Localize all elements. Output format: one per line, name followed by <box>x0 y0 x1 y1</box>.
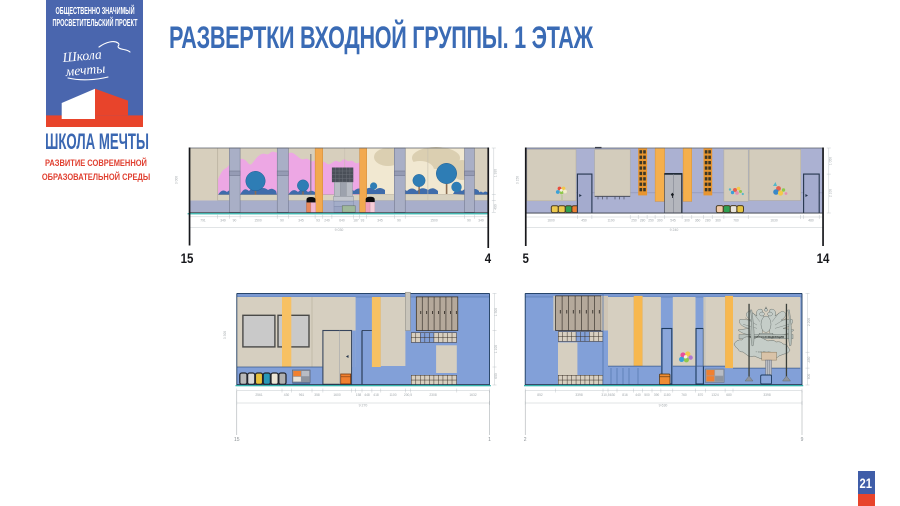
svg-text:3398: 3398 <box>763 393 771 397</box>
svg-text:2: 2 <box>524 437 527 443</box>
svg-text:249: 249 <box>324 219 330 223</box>
svg-text:390: 390 <box>654 393 660 397</box>
svg-text:1600: 1600 <box>547 219 555 223</box>
svg-text:345: 345 <box>298 219 304 223</box>
svg-text:3 150: 3 150 <box>516 176 520 184</box>
svg-text:1324: 1324 <box>711 393 719 397</box>
svg-text:250: 250 <box>631 219 637 223</box>
svg-text:1 500: 1 500 <box>494 308 498 316</box>
svg-text:93: 93 <box>361 219 365 223</box>
svg-text:1: 1 <box>488 437 491 443</box>
svg-text:1 100: 1 100 <box>494 345 498 353</box>
svg-text:640: 640 <box>339 219 345 223</box>
svg-text:852: 852 <box>537 393 543 397</box>
svg-text:9 270: 9 270 <box>359 404 368 408</box>
svg-text:500: 500 <box>644 393 650 397</box>
svg-text:280: 280 <box>705 219 711 223</box>
svg-text:90: 90 <box>467 219 471 223</box>
svg-text:358: 358 <box>314 393 320 397</box>
svg-text:430: 430 <box>284 393 290 397</box>
svg-text:1100: 1100 <box>389 393 396 397</box>
svg-text:200,5: 200,5 <box>404 393 412 397</box>
svg-text:90: 90 <box>233 219 237 223</box>
svg-text:90: 90 <box>397 219 401 223</box>
svg-text:349: 349 <box>478 219 484 223</box>
svg-text:480: 480 <box>808 219 814 223</box>
svg-text:545: 545 <box>670 219 676 223</box>
svg-text:450: 450 <box>581 219 587 223</box>
svg-text:300: 300 <box>684 219 690 223</box>
svg-text:90: 90 <box>280 219 284 223</box>
svg-text:440: 440 <box>635 393 641 397</box>
svg-text:158: 158 <box>356 393 362 397</box>
svg-text:250: 250 <box>648 219 654 223</box>
svg-text:15: 15 <box>234 437 240 443</box>
svg-text:9 240: 9 240 <box>670 228 679 232</box>
svg-text:1 050: 1 050 <box>829 157 833 165</box>
svg-text:760: 760 <box>681 393 687 397</box>
svg-text:1500: 1500 <box>254 219 262 223</box>
svg-text:14: 14 <box>817 250 831 266</box>
svg-text:5: 5 <box>523 250 529 266</box>
svg-text:мечты: мечты <box>64 61 106 79</box>
svg-text:1600: 1600 <box>333 393 341 397</box>
svg-text:791: 791 <box>200 219 206 223</box>
svg-text:2308: 2308 <box>429 393 437 397</box>
svg-text:3398: 3398 <box>575 393 583 397</box>
svg-text:-450: -450 <box>807 357 811 364</box>
svg-text:4: 4 <box>485 250 492 266</box>
svg-text:1632: 1632 <box>469 393 477 397</box>
svg-text:15: 15 <box>181 250 194 266</box>
svg-text:1500: 1500 <box>430 219 438 223</box>
svg-text:1630: 1630 <box>770 219 778 223</box>
svg-text:2561: 2561 <box>255 393 263 397</box>
svg-text:9: 9 <box>801 437 804 443</box>
svg-text:961: 961 <box>299 393 305 397</box>
svg-text:310,5: 310,5 <box>601 393 609 397</box>
svg-text:187: 187 <box>353 219 359 223</box>
svg-text:3 300: 3 300 <box>223 331 227 339</box>
svg-text:816: 816 <box>622 393 628 397</box>
svg-text:2 200: 2 200 <box>807 318 811 326</box>
svg-text:600: 600 <box>807 374 811 380</box>
svg-text:300: 300 <box>657 219 663 223</box>
svg-text:3 000: 3 000 <box>175 176 179 184</box>
svg-text:360: 360 <box>715 219 721 223</box>
svg-text:9 030: 9 030 <box>335 228 344 232</box>
svg-text:418: 418 <box>373 393 379 397</box>
svg-text:360: 360 <box>695 219 701 223</box>
svg-text:490: 490 <box>494 204 498 210</box>
svg-text:1180: 1180 <box>663 393 670 397</box>
svg-text:680: 680 <box>726 393 732 397</box>
svg-text:600: 600 <box>494 373 498 379</box>
svg-text:760: 760 <box>733 219 739 223</box>
svg-text:870: 870 <box>698 393 704 397</box>
svg-text:2 100: 2 100 <box>829 189 833 197</box>
svg-text:280: 280 <box>640 219 646 223</box>
svg-text:9 630: 9 630 <box>659 404 668 408</box>
svg-text:630: 630 <box>610 393 616 397</box>
svg-text:1 930: 1 930 <box>494 169 498 177</box>
svg-text:345: 345 <box>377 219 383 223</box>
svg-text:93: 93 <box>316 219 320 223</box>
svg-text:448: 448 <box>364 393 370 397</box>
svg-text:1190: 1190 <box>607 219 614 223</box>
svg-text:349: 349 <box>220 219 226 223</box>
